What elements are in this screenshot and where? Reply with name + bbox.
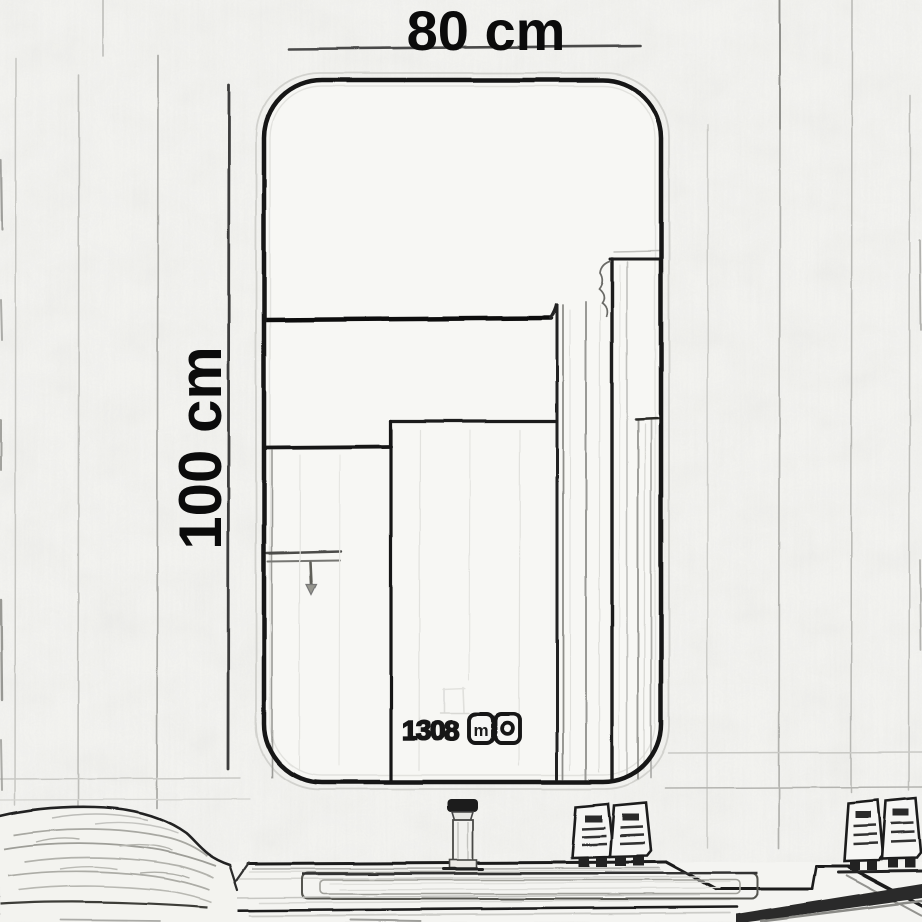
svg-text:80 cm: 80 cm <box>407 0 566 62</box>
svg-text:1308: 1308 <box>402 715 459 746</box>
svg-text:100 cm: 100 cm <box>167 346 234 550</box>
svg-text:m: m <box>473 721 488 740</box>
